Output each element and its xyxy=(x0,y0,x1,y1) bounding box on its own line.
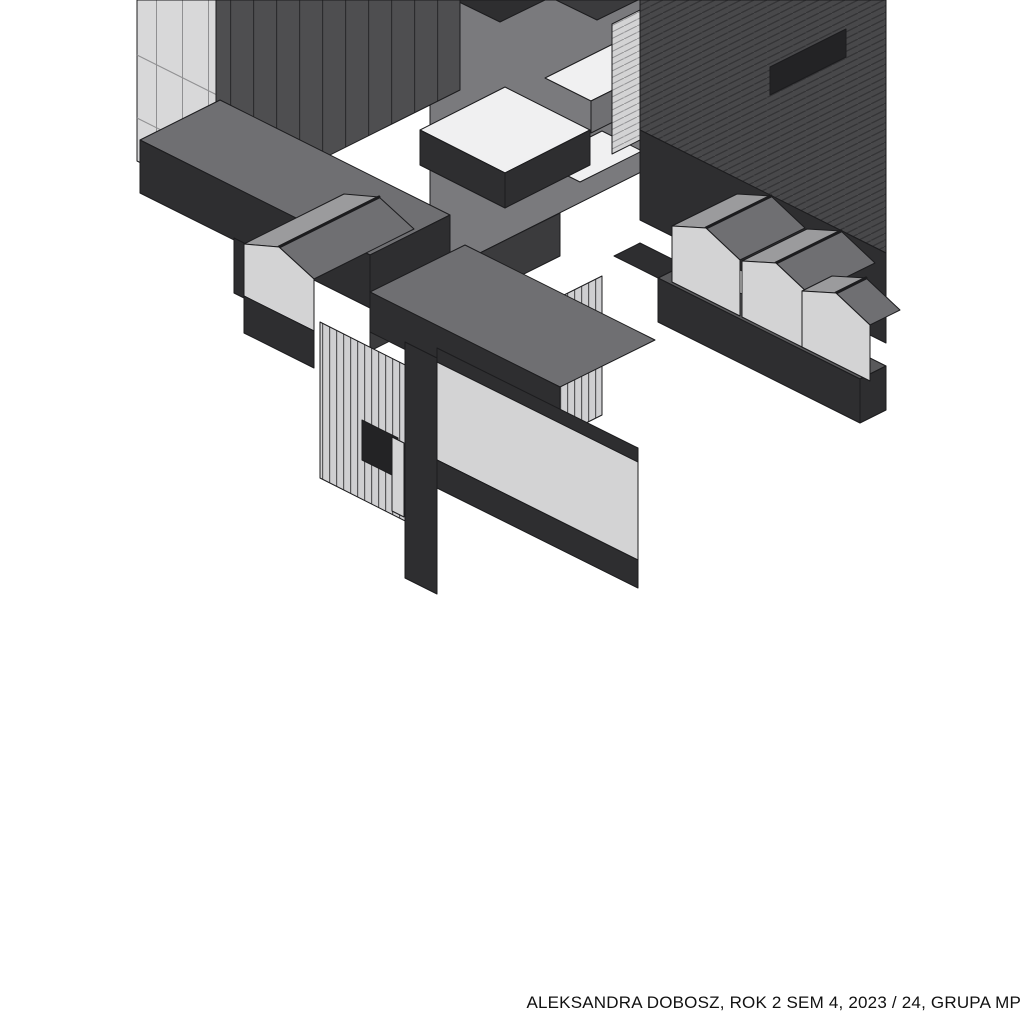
presentation-board: ALEKSANDRA DOBOSZ, ROK 2 SEM 4, 2023 / 2… xyxy=(0,0,1024,1024)
credit-caption: ALEKSANDRA DOBOSZ, ROK 2 SEM 4, 2023 / 2… xyxy=(526,993,1021,1013)
interior-wall-sliver xyxy=(392,437,404,517)
cut-wall-edge xyxy=(405,342,437,594)
gable-side-wall xyxy=(234,238,244,298)
hatched-facade-strip xyxy=(612,10,640,154)
axonometric-drawing xyxy=(0,0,1024,1024)
